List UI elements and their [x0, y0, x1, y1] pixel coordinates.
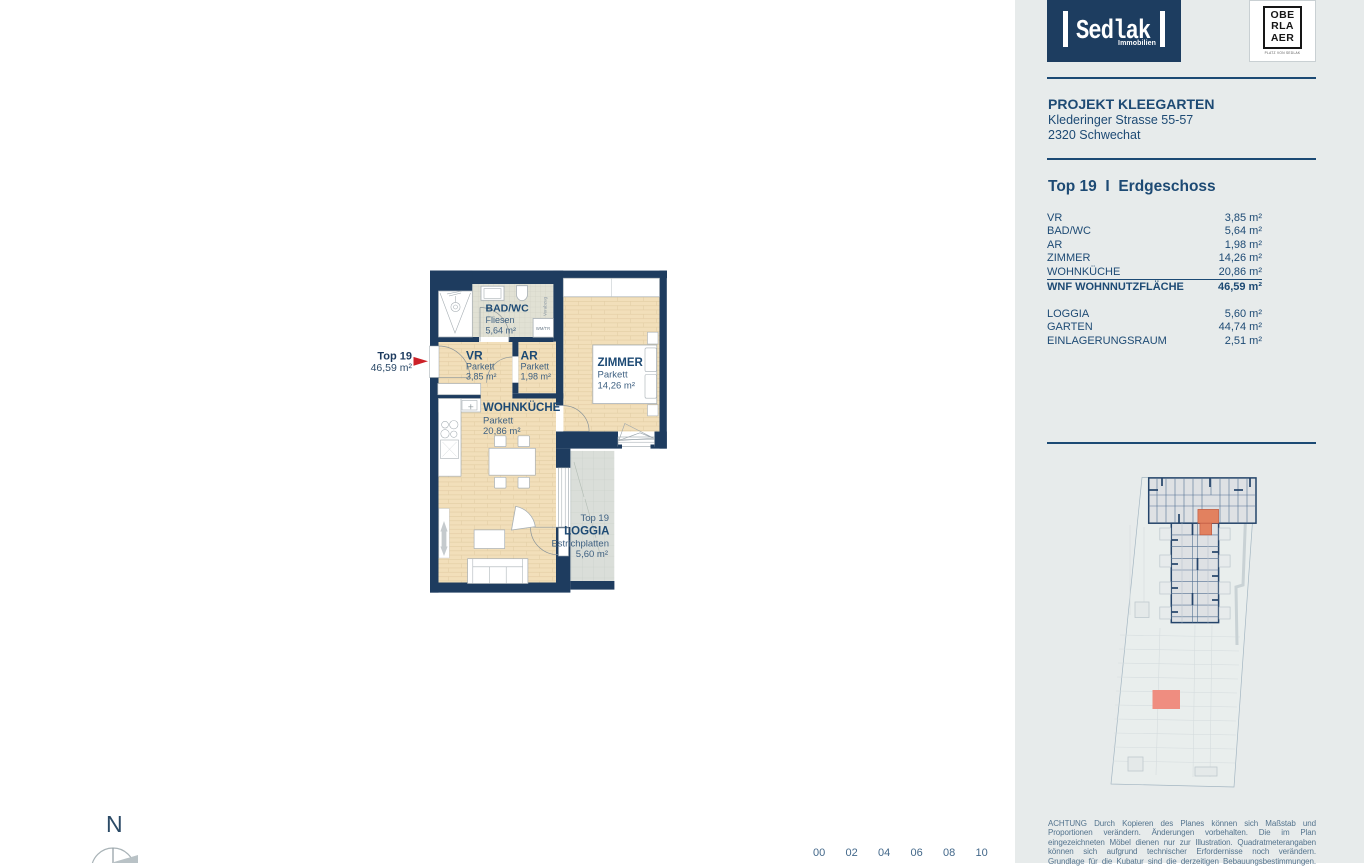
svg-text:VR: VR — [466, 348, 483, 362]
svg-text:5,64 m²: 5,64 m² — [486, 326, 517, 336]
svg-text:Top 19: Top 19 — [580, 513, 609, 524]
svg-text:Estrichplatten: Estrichplatten — [551, 539, 609, 550]
svg-text:LOGGIA: LOGGIA — [564, 525, 609, 537]
svg-text:1,98 m²: 1,98 m² — [521, 372, 552, 382]
svg-text:BAD/WC: BAD/WC — [486, 303, 530, 315]
svg-text:Parkett: Parkett — [521, 362, 550, 372]
svg-text:46,59 m²: 46,59 m² — [371, 362, 413, 374]
svg-text:WM/TR: WM/TR — [536, 326, 550, 331]
svg-text:Top 19: Top 19 — [377, 351, 412, 363]
svg-text:AR: AR — [521, 348, 539, 362]
svg-text:Fliesen: Fliesen — [486, 315, 515, 325]
svg-text:Parkett: Parkett — [598, 370, 628, 381]
svg-text:Parkett: Parkett — [466, 362, 495, 372]
svg-text:5,60 m²: 5,60 m² — [576, 549, 608, 560]
svg-text:WOHNKÜCHE: WOHNKÜCHE — [483, 401, 561, 414]
svg-text:Vorabzug: Vorabzug — [543, 296, 548, 316]
svg-text:14,26 m²: 14,26 m² — [598, 381, 636, 392]
svg-text:ZIMMER: ZIMMER — [598, 357, 644, 369]
svg-text:3,85 m²: 3,85 m² — [466, 372, 497, 382]
svg-text:Parkett: Parkett — [483, 416, 513, 427]
svg-text:20,86 m²: 20,86 m² — [483, 426, 521, 437]
